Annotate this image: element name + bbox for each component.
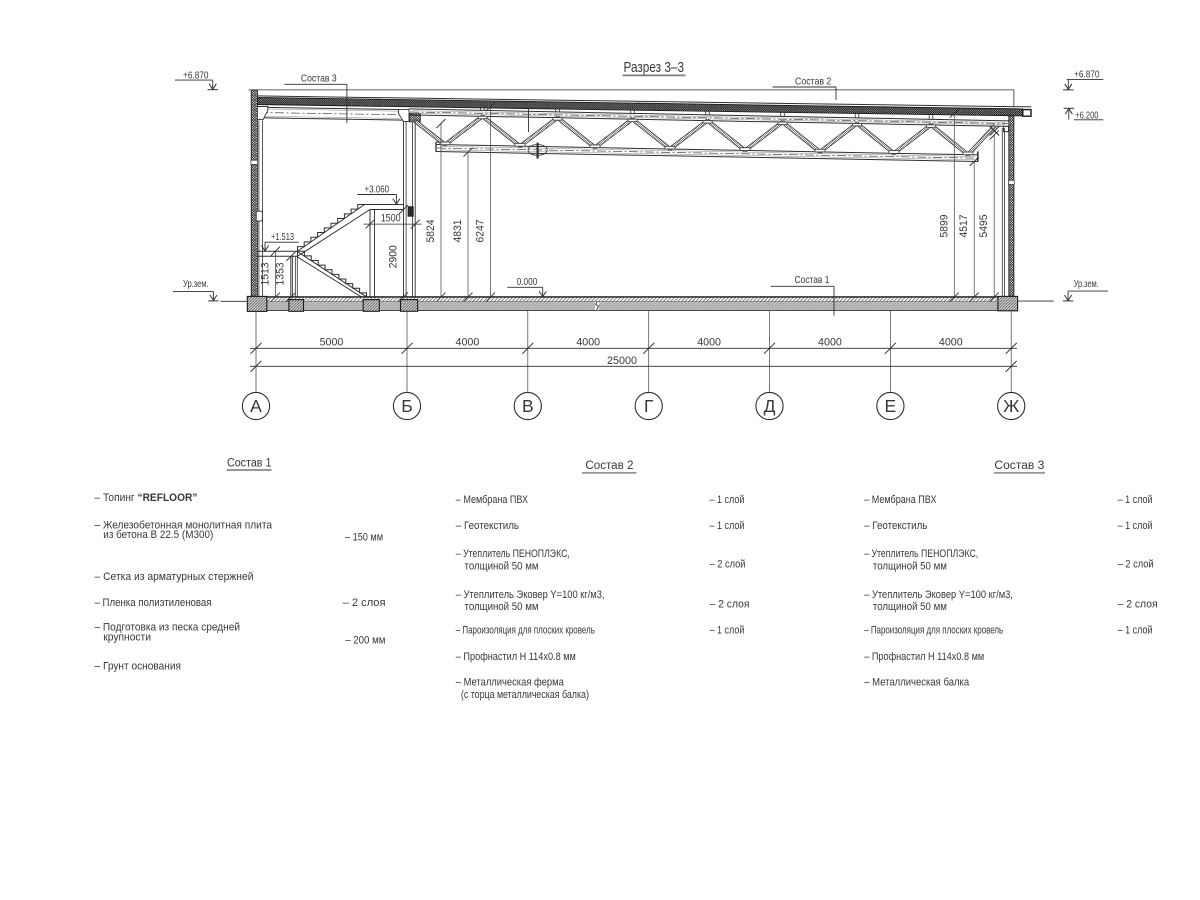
svg-text:Б: Б <box>401 396 412 416</box>
svg-text:4517: 4517 <box>958 215 970 238</box>
svg-text:– Геотекстиль: – Геотекстиль <box>864 520 927 532</box>
svg-text:– 1 слой: – 1 слой <box>1118 624 1153 636</box>
svg-text:толщиной 50 мм: толщиной 50 мм <box>873 601 947 613</box>
svg-text:– 1 слой: – 1 слой <box>710 624 745 636</box>
svg-text:– Утеплитель Эковер Y=100 кг/: – Утеплитель Эковер Y=100 кг/м3, <box>864 589 1013 601</box>
svg-text:Состав 2: Состав 2 <box>795 75 831 87</box>
svg-text:2900: 2900 <box>387 245 399 268</box>
svg-text:4000: 4000 <box>818 337 842 349</box>
svg-text:Состав 2: Состав 2 <box>585 460 633 472</box>
svg-text:4000: 4000 <box>576 337 600 349</box>
svg-text:– Пароизоляция для плоских кр: – Пароизоляция для плоских кровель <box>864 624 1003 636</box>
svg-text:Разрез 3–3: Разрез 3–3 <box>624 60 685 76</box>
svg-text:1500: 1500 <box>381 213 401 225</box>
svg-text:4000: 4000 <box>456 337 480 349</box>
svg-text:Ж: Ж <box>1003 396 1019 416</box>
svg-text:+1.513: +1.513 <box>271 231 294 243</box>
svg-text:Ур.зем.: Ур.зем. <box>183 278 209 290</box>
svg-text:+3.060: +3.060 <box>365 183 390 195</box>
svg-text:Состав 3: Состав 3 <box>994 460 1044 472</box>
svg-text:6247: 6247 <box>475 220 487 243</box>
svg-text:из бетона В 22.5 (М300): из бетона В 22.5 (М300) <box>103 529 213 541</box>
svg-text:– Утеплитель ПЕНОПЛЭКС,: – Утеплитель ПЕНОПЛЭКС, <box>864 548 978 560</box>
svg-text:А: А <box>250 396 262 416</box>
svg-text:толщиной 50 мм: толщиной 50 мм <box>465 560 539 572</box>
svg-text:5495: 5495 <box>978 215 990 238</box>
svg-text:0.000: 0.000 <box>517 276 538 288</box>
svg-text:Состав 1: Состав 1 <box>227 458 272 470</box>
svg-text:крупности: крупности <box>103 631 151 643</box>
svg-text:(с торца металлическая балка): (с торца металлическая балка) <box>461 689 589 701</box>
svg-text:– Металлическая балка: – Металлическая балка <box>864 676 970 688</box>
svg-text:– Утеплитель Эковер Y=100 кг/: – Утеплитель Эковер Y=100 кг/м3, <box>456 589 605 601</box>
svg-text:– Грунт основания: – Грунт основания <box>95 661 182 673</box>
svg-text:1513: 1513 <box>259 263 271 286</box>
svg-text:Г: Г <box>644 396 654 416</box>
svg-text:Состав 1: Состав 1 <box>795 274 830 286</box>
svg-text:– 200 мм: – 200 мм <box>345 635 385 647</box>
svg-text:– Профнастил Н 114х0.8 мм: – Профнастил Н 114х0.8 мм <box>864 651 984 663</box>
svg-text:– 1 слой: – 1 слой <box>710 520 745 532</box>
svg-text:5824: 5824 <box>425 220 437 243</box>
svg-text:Ур.зем.: Ур.зем. <box>1074 278 1099 290</box>
svg-text:– 1 слой: – 1 слой <box>1118 520 1153 532</box>
svg-text:толщиной 50 мм: толщиной 50 мм <box>873 560 947 572</box>
svg-text:– 2 слоя: – 2 слоя <box>710 598 750 610</box>
svg-text:Состав 3: Состав 3 <box>301 73 337 85</box>
svg-text:4000: 4000 <box>697 337 721 349</box>
svg-text:– 1 слой: – 1 слой <box>710 494 745 506</box>
svg-text:25000: 25000 <box>607 355 637 367</box>
svg-text:1353: 1353 <box>274 263 286 286</box>
svg-text:– Профнастил Н 114х0.8 мм: – Профнастил Н 114х0.8 мм <box>456 651 576 663</box>
svg-text:5000: 5000 <box>320 337 344 349</box>
svg-text:– 1 слой: – 1 слой <box>1118 494 1153 506</box>
svg-text:– Сетка из арматурных стержне: – Сетка из арматурных стержней <box>95 571 254 583</box>
svg-text:– 150 мм: – 150 мм <box>345 532 383 544</box>
svg-text:4000: 4000 <box>939 337 963 349</box>
svg-text:– Топинг “REFLOOR”: – Топинг “REFLOOR” <box>95 492 198 504</box>
svg-text:– Металлическая ферма: – Металлическая ферма <box>456 676 565 688</box>
svg-text:5899: 5899 <box>938 215 950 238</box>
svg-text:+6.870: +6.870 <box>1074 68 1100 80</box>
svg-text:– Мембрана ПВХ: – Мембрана ПВХ <box>456 494 529 506</box>
svg-text:Д: Д <box>764 396 776 416</box>
svg-text:Е: Е <box>885 396 897 416</box>
svg-text:– Пароизоляция для плоских кр: – Пароизоляция для плоских кровель <box>456 624 595 636</box>
svg-text:– Мембрана ПВХ: – Мембрана ПВХ <box>864 494 937 506</box>
svg-text:– 2 слоя: – 2 слоя <box>343 597 386 609</box>
svg-text:толщиной 50 мм: толщиной 50 мм <box>465 601 539 613</box>
svg-text:– 2 слой: – 2 слой <box>1118 559 1154 571</box>
svg-text:– Геотекстиль: – Геотекстиль <box>456 520 519 532</box>
svg-text:4831: 4831 <box>452 220 464 243</box>
svg-text:– 2 слой: – 2 слой <box>710 559 746 571</box>
svg-text:– 2 слоя: – 2 слоя <box>1118 598 1158 610</box>
svg-text:– Утеплитель ПЕНОПЛЭКС,: – Утеплитель ПЕНОПЛЭКС, <box>456 548 570 560</box>
svg-text:В: В <box>522 396 534 416</box>
svg-text:+6.870: +6.870 <box>183 69 209 81</box>
svg-text:– Пленка полиэтиленовая: – Пленка полиэтиленовая <box>95 597 212 609</box>
